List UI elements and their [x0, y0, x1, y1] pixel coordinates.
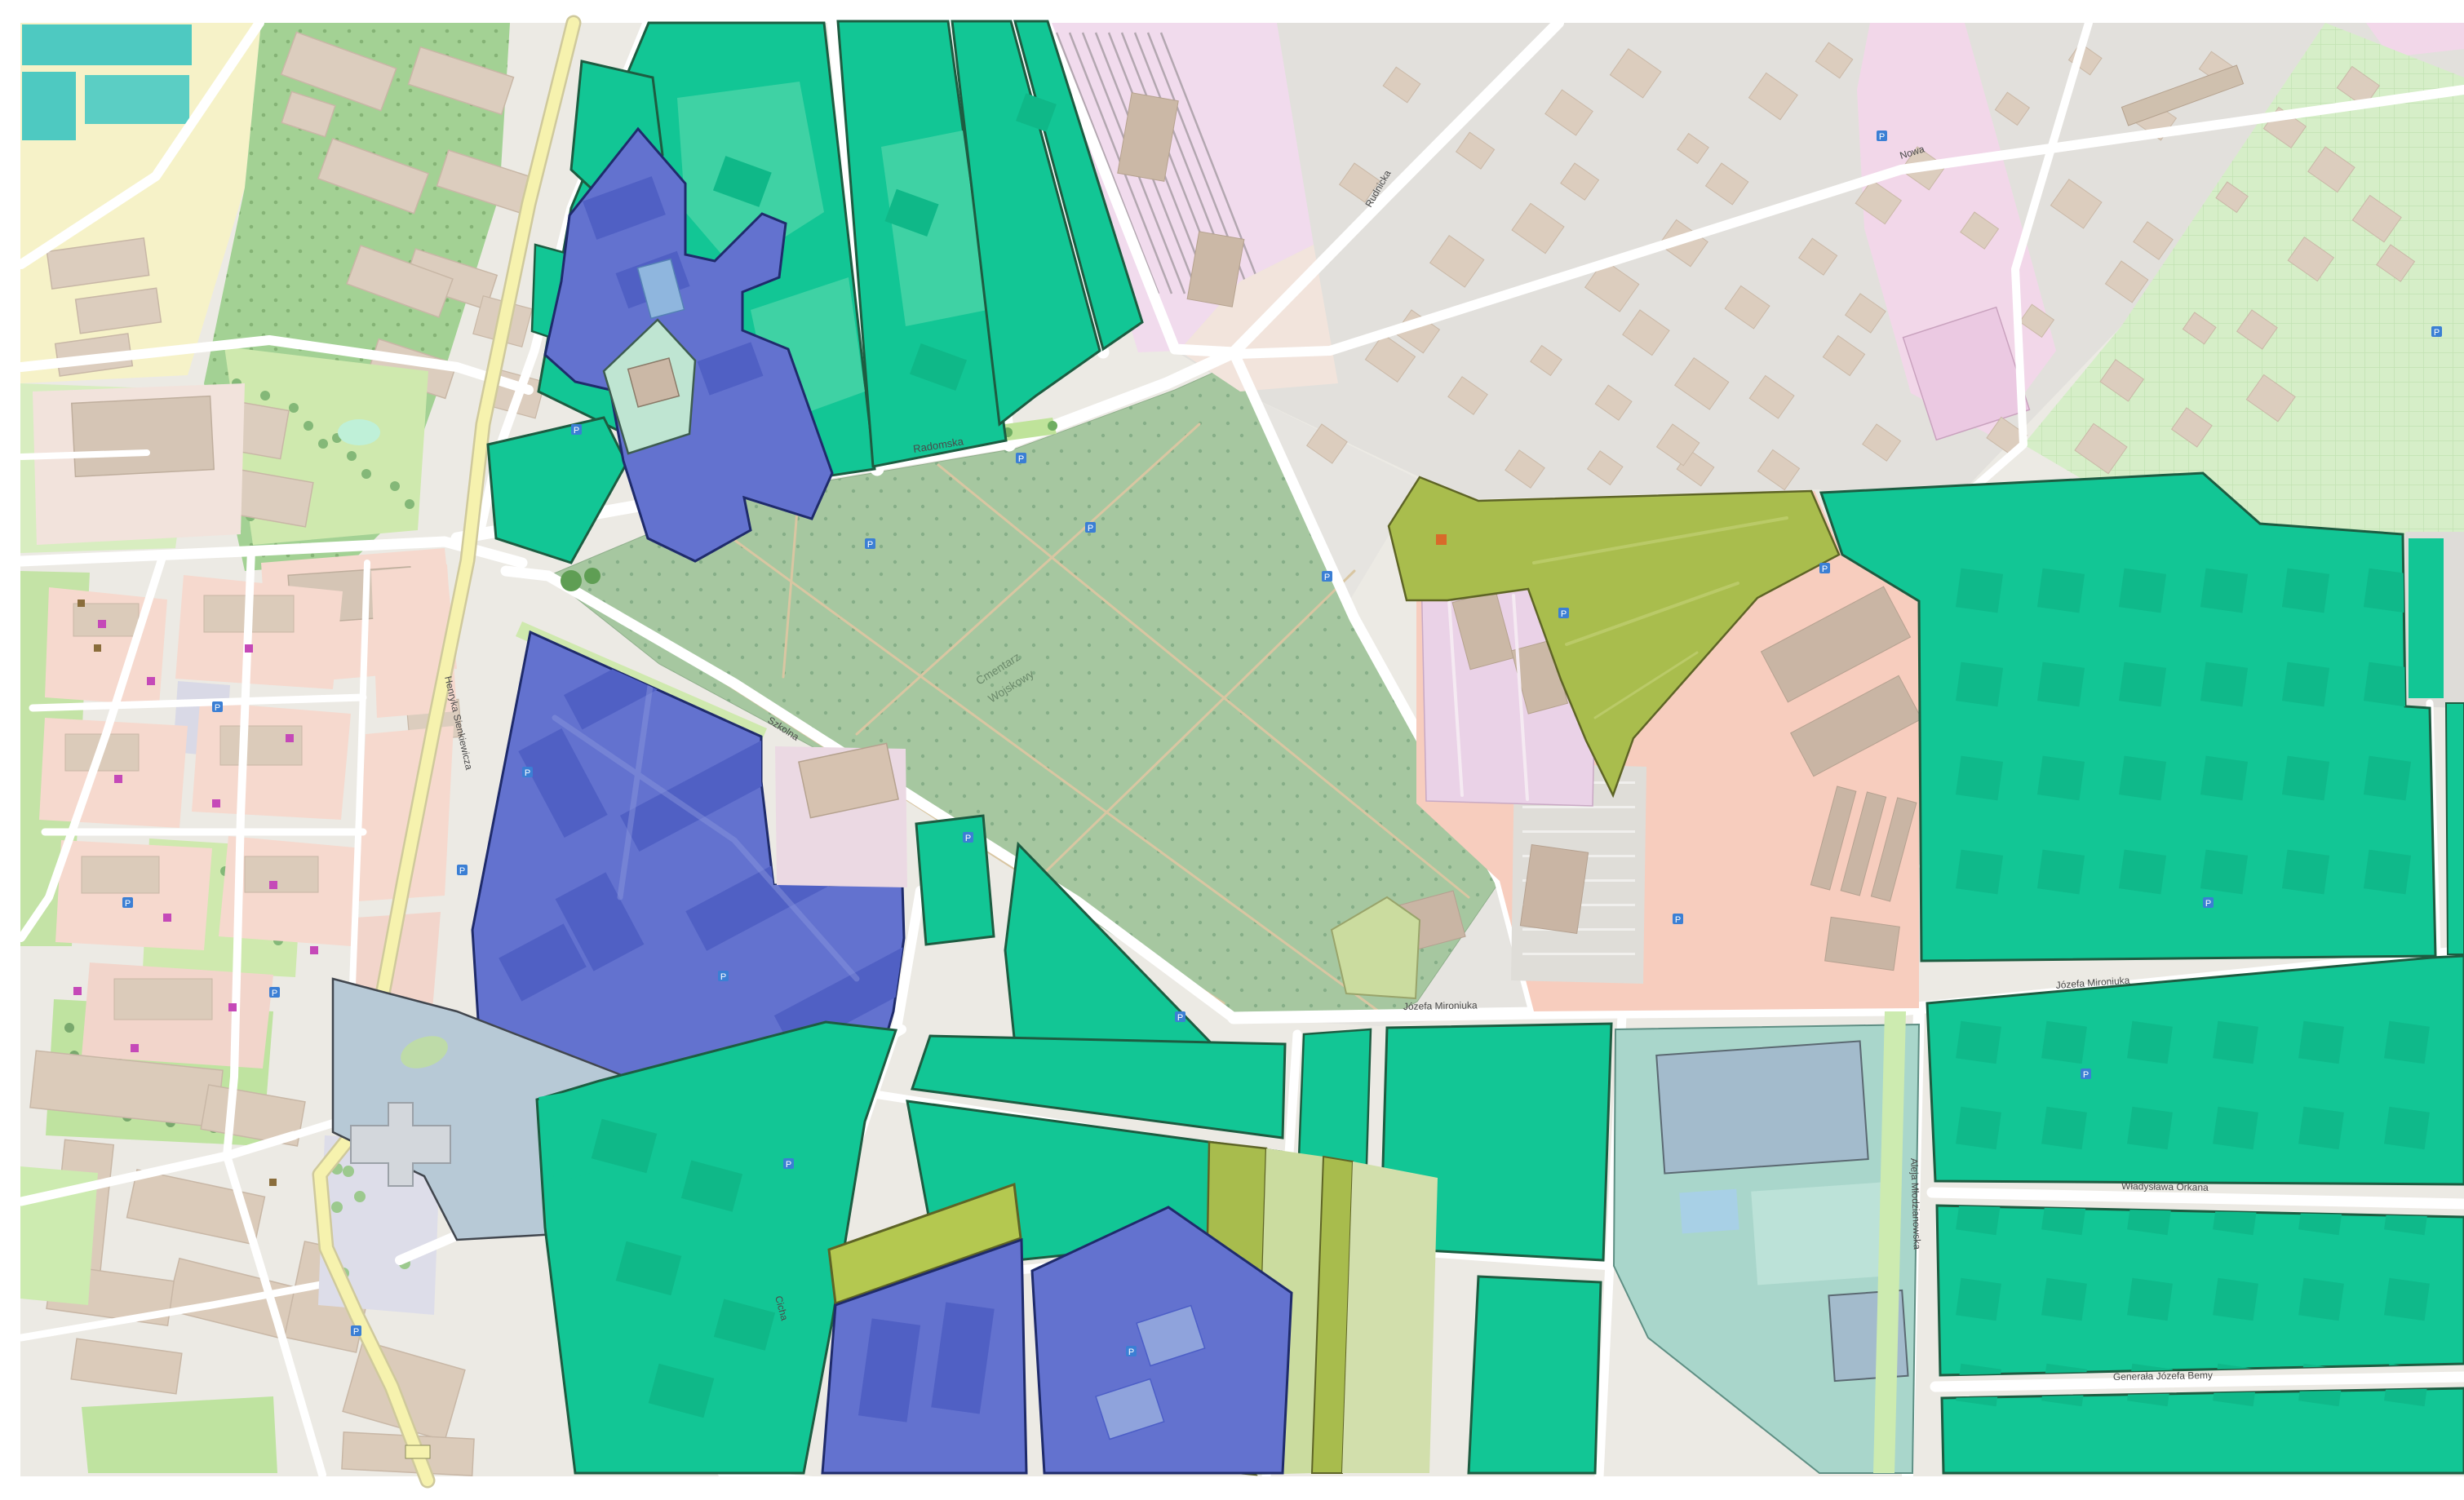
svg-text:P: P — [353, 1327, 359, 1337]
svg-text:P: P — [965, 834, 971, 843]
svg-text:P: P — [1324, 573, 1330, 582]
svg-text:P: P — [1675, 915, 1681, 925]
svg-text:P: P — [867, 540, 873, 550]
svg-text:P: P — [786, 1160, 791, 1170]
svg-text:P: P — [1018, 454, 1024, 464]
svg-text:P: P — [720, 972, 726, 982]
svg-text:P: P — [2434, 328, 2440, 338]
svg-text:P: P — [272, 989, 277, 998]
svg-text:P: P — [125, 899, 131, 909]
svg-text:P: P — [459, 866, 465, 876]
svg-text:Józefa Mironiuka: Józefa Mironiuka — [1403, 999, 1478, 1012]
svg-text:P: P — [1561, 609, 1567, 619]
svg-text:P: P — [1822, 564, 1828, 574]
svg-text:P: P — [574, 426, 579, 436]
svg-text:P: P — [525, 768, 530, 778]
svg-text:P: P — [2083, 1070, 2089, 1080]
svg-text:Generała Józefa Bemy: Generała Józefa Bemy — [2113, 1369, 2213, 1383]
svg-text:P: P — [1128, 1347, 1134, 1357]
svg-text:P: P — [1177, 1013, 1183, 1023]
svg-text:P: P — [215, 703, 220, 713]
svg-text:P: P — [1879, 132, 1885, 142]
svg-text:P: P — [1088, 524, 1093, 533]
svg-text:Władysława Orkana: Władysława Orkana — [2121, 1180, 2209, 1193]
svg-text:P: P — [2205, 899, 2211, 909]
